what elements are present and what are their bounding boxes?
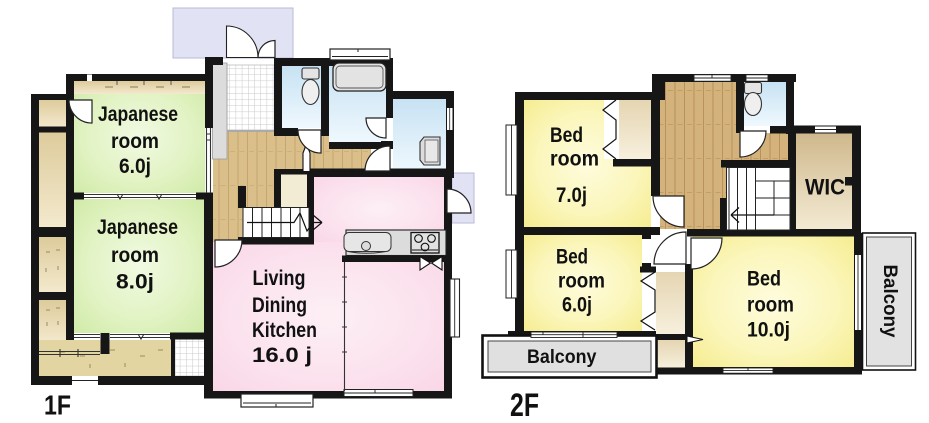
svg-text:Balcony: Balcony <box>527 347 597 368</box>
svg-text:room: room <box>550 148 599 171</box>
svg-text:room: room <box>747 293 794 316</box>
svg-text:Japanese: Japanese <box>97 216 178 239</box>
svg-text:room: room <box>558 270 605 293</box>
svg-text:WIC: WIC <box>805 175 845 200</box>
svg-text:7.0j: 7.0j <box>556 184 587 207</box>
svg-text:room: room <box>111 244 159 267</box>
svg-text:10.0j: 10.0j <box>747 319 790 342</box>
svg-text:6.0j: 6.0j <box>119 155 151 178</box>
svg-text:Bed: Bed <box>747 267 781 290</box>
svg-text:2F: 2F <box>510 387 539 423</box>
svg-text:8.0j: 8.0j <box>116 271 154 294</box>
svg-text:6.0j: 6.0j <box>562 294 592 317</box>
svg-text:Kitchen: Kitchen <box>252 319 317 342</box>
svg-text:Bed: Bed <box>556 246 588 269</box>
svg-text:room: room <box>111 130 159 153</box>
svg-text:1F: 1F <box>44 390 71 421</box>
svg-text:Balcony: Balcony <box>879 265 900 338</box>
svg-text:Dining: Dining <box>252 294 307 317</box>
svg-text:16.0 j: 16.0 j <box>252 344 312 367</box>
svg-text:Living: Living <box>253 267 306 290</box>
svg-text:Bed: Bed <box>550 124 583 147</box>
svg-text:Japanese: Japanese <box>98 103 178 126</box>
